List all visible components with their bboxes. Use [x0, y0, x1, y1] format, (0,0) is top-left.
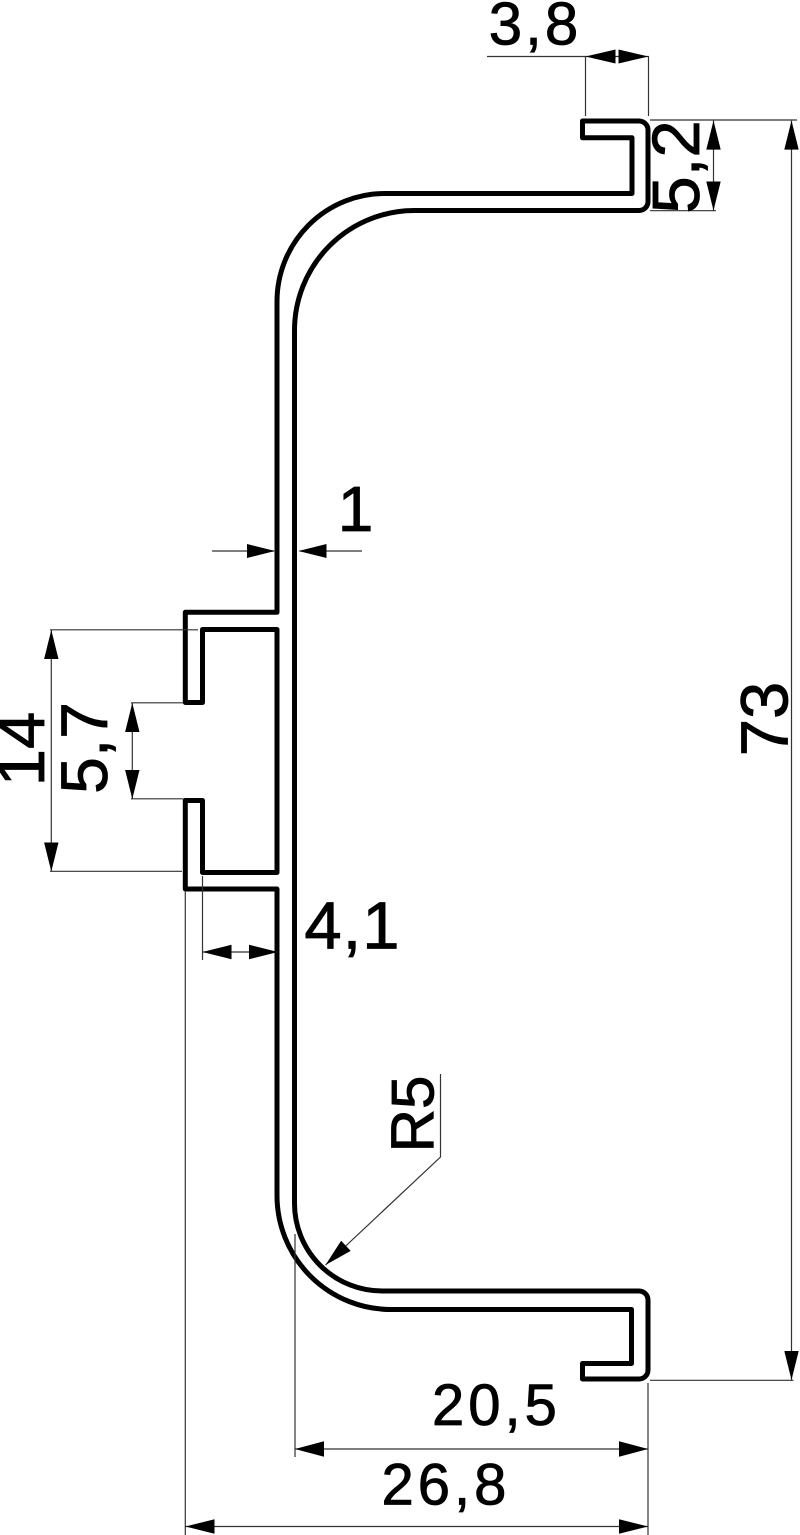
- svg-text:1: 1: [338, 473, 374, 545]
- svg-text:5,2: 5,2: [639, 120, 714, 213]
- svg-text:73: 73: [728, 682, 800, 757]
- svg-text:5,7: 5,7: [47, 702, 121, 794]
- svg-text:20,5: 20,5: [432, 1373, 561, 1438]
- svg-text:26,8: 26,8: [382, 1453, 511, 1518]
- svg-text:3,8: 3,8: [489, 0, 581, 58]
- svg-text:R5: R5: [380, 1076, 447, 1153]
- svg-text:4,1: 4,1: [304, 889, 400, 964]
